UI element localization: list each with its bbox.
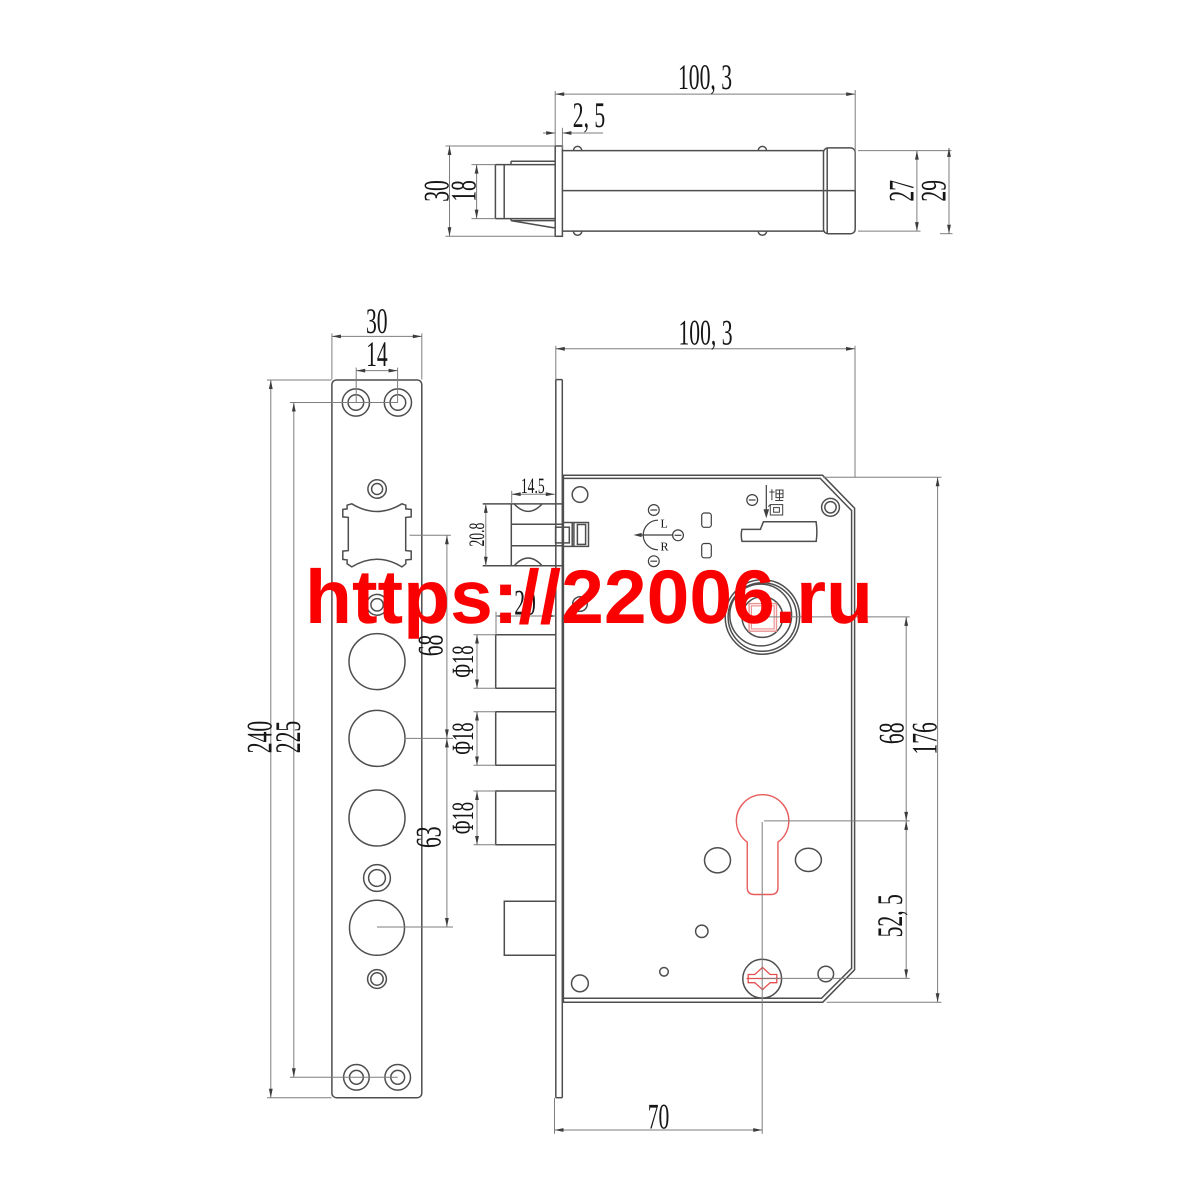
svg-text:L: L: [661, 517, 668, 531]
svg-text:176: 176: [905, 722, 945, 754]
svg-text:18: 18: [444, 180, 484, 202]
svg-text:100, 3: 100, 3: [678, 57, 732, 97]
svg-text:29: 29: [914, 180, 954, 202]
svg-text:https://22006.ru: https://22006.ru: [305, 555, 873, 640]
svg-text:R: R: [661, 540, 669, 554]
svg-text:52, 5: 52, 5: [870, 894, 910, 937]
svg-text:20.8: 20.8: [464, 523, 489, 547]
svg-text:63: 63: [409, 826, 449, 848]
svg-text:2, 5: 2, 5: [573, 95, 605, 135]
svg-text:225: 225: [268, 721, 308, 753]
svg-text:100, 3: 100, 3: [679, 313, 733, 353]
svg-text:14.5: 14.5: [521, 473, 545, 498]
svg-text:Φ18: Φ18: [445, 722, 480, 754]
svg-text:14: 14: [366, 334, 388, 374]
svg-text:Φ18: Φ18: [445, 645, 480, 677]
svg-text:70: 70: [648, 1097, 670, 1137]
svg-text:Φ18: Φ18: [445, 802, 480, 834]
